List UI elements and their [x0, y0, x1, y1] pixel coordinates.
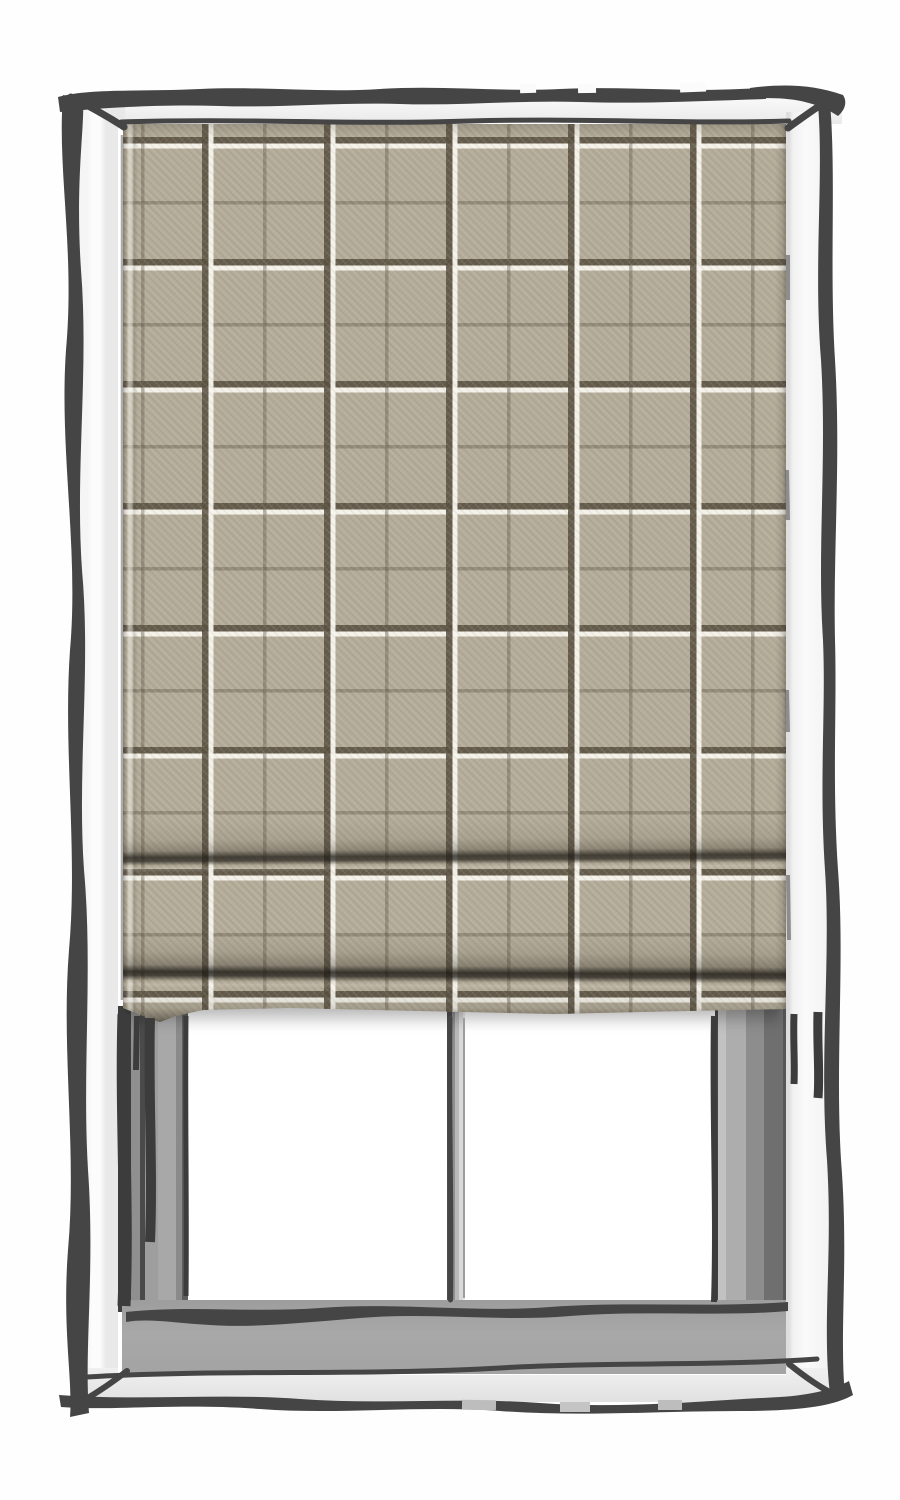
window-pane-left [188, 1010, 447, 1304]
window-left-jamb [118, 1006, 188, 1312]
window-blind-illustration [0, 0, 900, 1500]
fold-shadow-1 [120, 815, 789, 873]
roman-blind [123, 124, 786, 1024]
frame-right-face [786, 112, 828, 1374]
blind-edge-shading [123, 124, 786, 1024]
window-sill [122, 1300, 786, 1374]
blind-top-shade [123, 124, 786, 138]
fold-shadow-2 [120, 930, 789, 991]
window-mullion [447, 1010, 465, 1304]
frame-top-face [62, 95, 842, 124]
window-pane-right [465, 1010, 715, 1304]
